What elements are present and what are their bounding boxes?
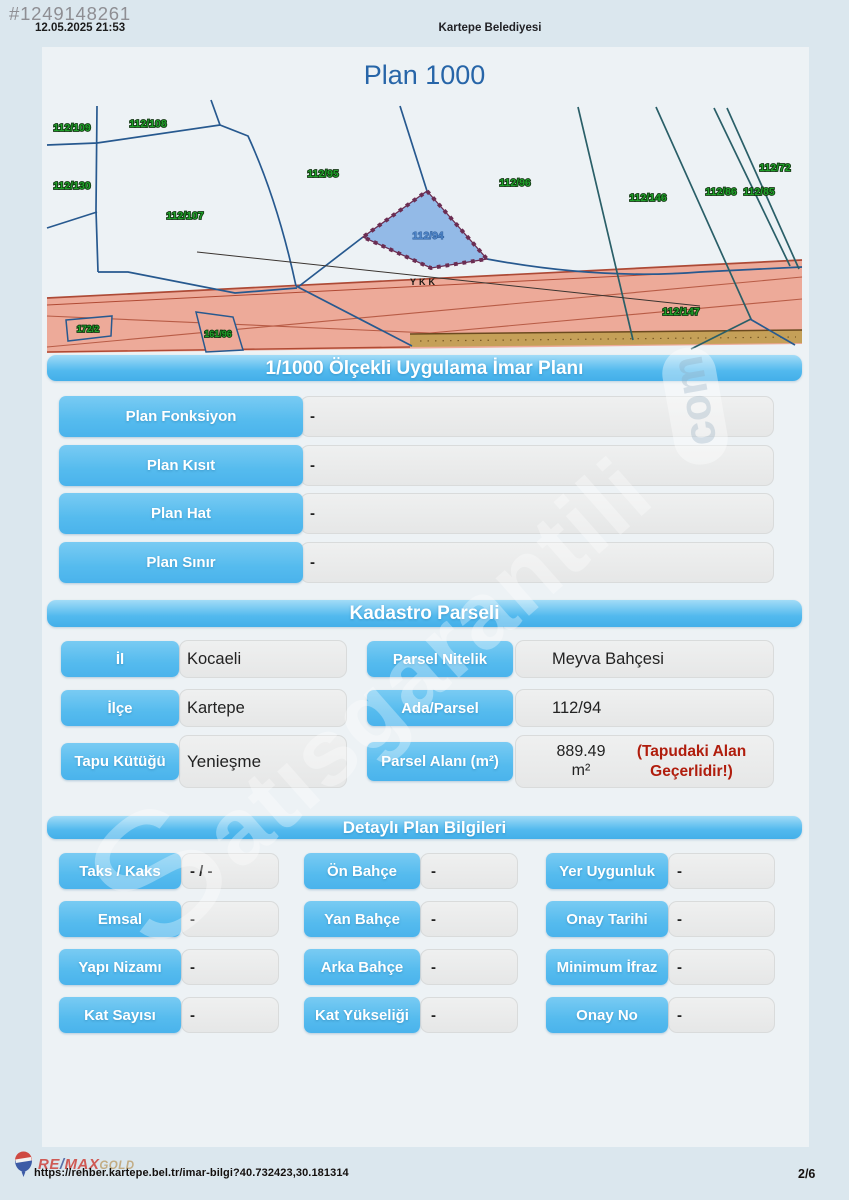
svg-text:112/94: 112/94: [412, 230, 444, 242]
svg-text:112/85: 112/85: [743, 186, 775, 198]
svg-text:112/72: 112/72: [759, 162, 791, 174]
svg-text:112/96: 112/96: [499, 177, 531, 189]
svg-text:112/108: 112/108: [129, 118, 167, 130]
svg-text:112/109: 112/109: [53, 122, 91, 134]
svg-text:112/95: 112/95: [307, 168, 339, 180]
svg-text:112/130: 112/130: [53, 180, 91, 192]
svg-text:161/96: 161/96: [204, 329, 232, 339]
svg-text:112/86: 112/86: [705, 186, 737, 198]
svg-text:172/2: 172/2: [77, 324, 100, 334]
svg-text:112/107: 112/107: [166, 210, 204, 222]
svg-text:YKK: YKK: [410, 277, 438, 287]
svg-text:112/147: 112/147: [662, 306, 700, 318]
svg-text:112/146: 112/146: [629, 192, 667, 204]
